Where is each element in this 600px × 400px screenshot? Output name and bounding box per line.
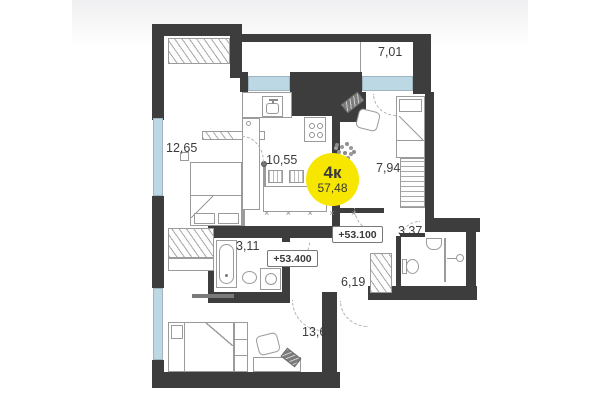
- pillow: [194, 213, 215, 224]
- blanket-fold: [399, 116, 423, 140]
- wall: [240, 34, 414, 42]
- wall: [282, 238, 290, 242]
- window-glass: [248, 76, 290, 91]
- window-glass: [153, 288, 163, 360]
- bathroom-sink: [242, 271, 257, 284]
- room-label-hallway: 6,19: [341, 275, 365, 289]
- tub-drain: [225, 274, 228, 277]
- loggia-divider: [360, 42, 361, 72]
- pillow: [218, 213, 239, 224]
- shelving: [234, 322, 248, 372]
- bar-stool: [268, 170, 283, 183]
- room-label-kitchen-living: 10,55: [266, 153, 297, 167]
- bed-line: [397, 140, 424, 141]
- washer-drum: [265, 273, 277, 285]
- shower-partition: [444, 238, 446, 282]
- wall: [152, 372, 340, 388]
- wardrobe: [370, 253, 392, 293]
- room-label-bedroom-right: 7,94: [376, 161, 400, 175]
- bar-stool: [289, 170, 304, 183]
- kitchen-counter: [242, 118, 260, 210]
- wardrobe: [400, 158, 425, 208]
- wall: [396, 236, 401, 288]
- tv-console: [192, 294, 234, 298]
- wardrobe: [168, 38, 230, 64]
- shower-head: [456, 254, 464, 262]
- elevation-label: +53.100: [338, 229, 376, 241]
- room-label-loggia: 7,01: [378, 45, 402, 59]
- window-glass: [153, 118, 163, 196]
- wall: [466, 228, 476, 290]
- flat-marker-badge[interactable]: 4к 57,48: [306, 153, 359, 206]
- stove: [304, 117, 326, 142]
- plant-icon: [335, 143, 339, 147]
- flat-type-label: 4к: [324, 164, 342, 182]
- wardrobe-shelf: [168, 258, 214, 271]
- sink-basin: [266, 103, 279, 114]
- wall: [282, 264, 290, 292]
- bar-partition: [263, 164, 266, 186]
- pillow: [399, 99, 422, 112]
- washing-machine: [260, 268, 281, 290]
- bed-line: [184, 323, 185, 371]
- shelf-hatch: [203, 132, 233, 139]
- room-label-bathroom-small: 3,37: [398, 224, 422, 238]
- toilet-bowl: [406, 259, 419, 274]
- pillow: [171, 325, 183, 339]
- counter-marks: × × × × ×: [264, 208, 363, 218]
- floor-plan: × × × × × 7,01 12,65 10,55 7,94 3: [0, 0, 600, 400]
- window-glass: [362, 76, 413, 91]
- flat-area-label: 57,48: [317, 182, 347, 195]
- wall: [152, 196, 164, 288]
- room-label-bedroom-left: 12,65: [166, 141, 197, 155]
- wardrobe: [168, 228, 214, 258]
- wall: [152, 24, 164, 120]
- wall: [425, 92, 434, 232]
- bathroom-sink: [426, 238, 442, 250]
- wall: [230, 24, 242, 78]
- wall: [413, 34, 431, 94]
- wall: [208, 226, 332, 238]
- shelf-divider: [235, 339, 247, 340]
- kitchen-sink: [262, 96, 283, 117]
- faucet-icon: [272, 99, 274, 104]
- room-label-bedroom-bottom: 13,67: [302, 325, 333, 339]
- blanket-fold: [205, 322, 233, 346]
- elevation-mark: +53.100: [332, 226, 383, 243]
- counter-knob: [246, 121, 251, 126]
- elevation-mark: +53.400: [267, 250, 318, 267]
- wall: [152, 24, 242, 36]
- tub-basin: [219, 244, 234, 284]
- elevation-label: +53.400: [273, 253, 311, 265]
- shelf-divider: [235, 355, 247, 356]
- room-label-bathroom-main: 3,11: [236, 239, 259, 253]
- bathtub: [216, 240, 237, 288]
- wall: [240, 72, 248, 92]
